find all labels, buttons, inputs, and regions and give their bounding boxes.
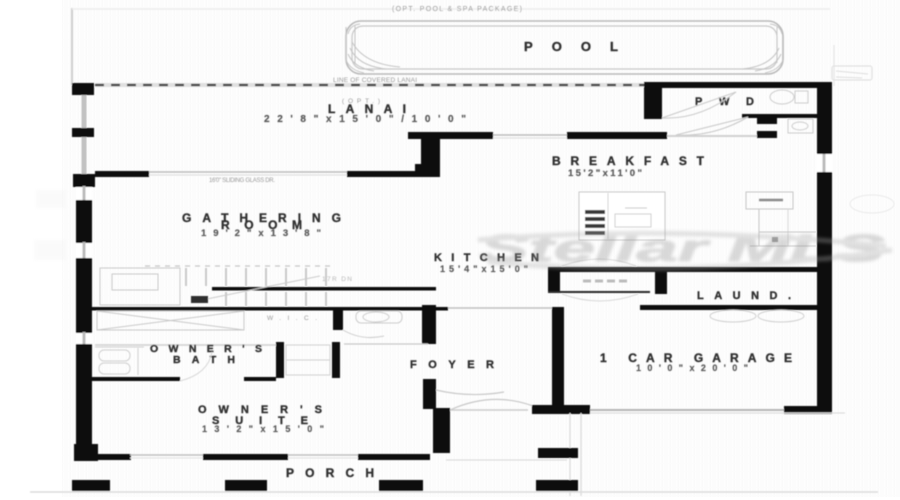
svg-text:17R DN: 17R DN	[322, 276, 352, 283]
svg-text:16'0" SLIDING GLASS DR.: 16'0" SLIDING GLASS DR.	[209, 178, 275, 184]
svg-text:BREAKFAST: BREAKFAST	[552, 154, 705, 168]
svg-text:15'2"x11'0": 15'2"x11'0"	[568, 168, 642, 179]
svg-text:GATHERING: GATHERING	[182, 211, 341, 225]
svg-text:(OPT. POOL & SPA PACKAGE): (OPT. POOL & SPA PACKAGE)	[392, 6, 522, 13]
svg-text:LINE OF COVERED LANAI: LINE OF COVERED LANAI	[333, 77, 417, 84]
